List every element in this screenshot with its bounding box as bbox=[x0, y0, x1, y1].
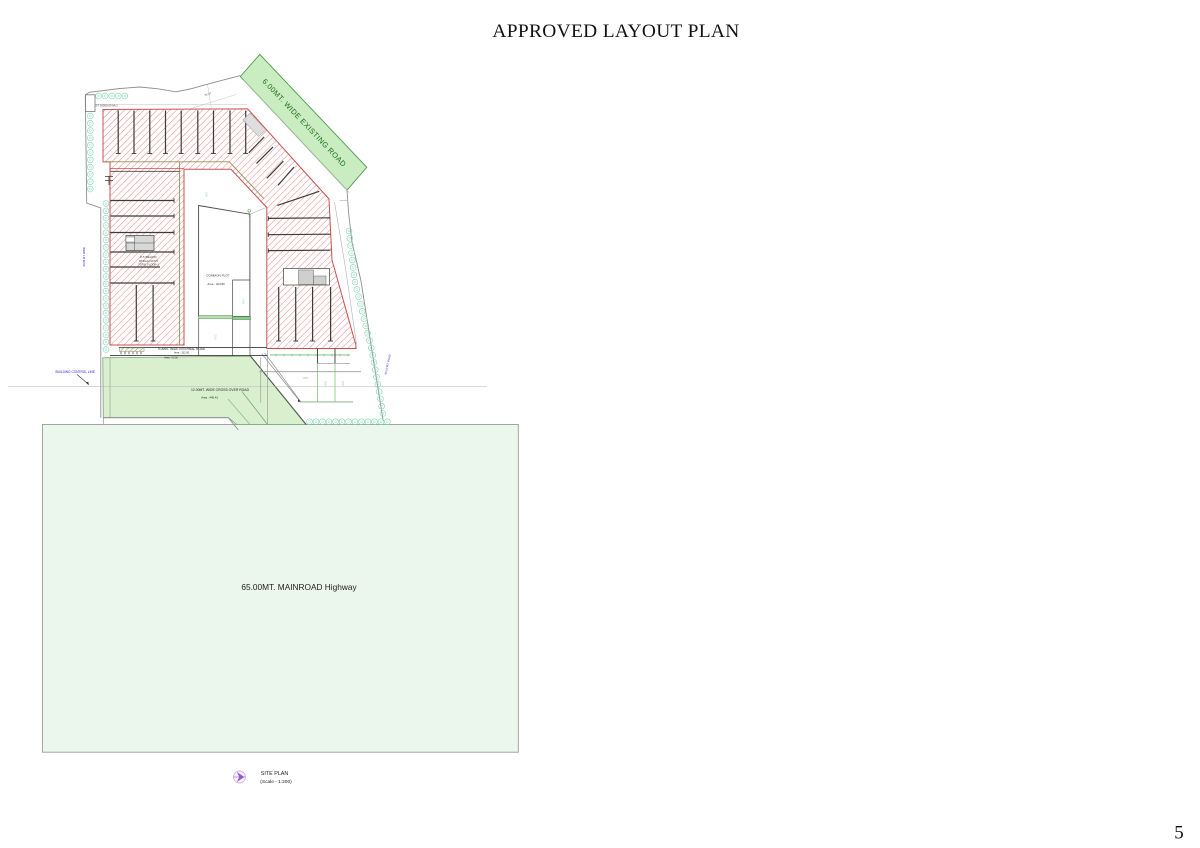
svg-text:Area : 445.41: Area : 445.41 bbox=[201, 395, 218, 399]
svg-text:VRD: VRD bbox=[243, 299, 246, 304]
svg-text:60.96 MT. WIDE: 60.96 MT. WIDE bbox=[82, 247, 86, 267]
svg-text:9.00MT. WIDE INTERNAL ROAD: 9.00MT. WIDE INTERNAL ROAD bbox=[158, 347, 206, 351]
svg-text:VRD: VRD bbox=[206, 192, 209, 197]
svg-text:VRD: VRD bbox=[249, 211, 251, 216]
svg-text:5: 5 bbox=[1174, 823, 1184, 844]
svg-text:SITE PLAN: SITE PLAN bbox=[261, 771, 289, 777]
svg-text:38.50x11.00 MT: 38.50x11.00 MT bbox=[139, 259, 159, 263]
svg-text:BUILDING CONTROL LINE: BUILDING CONTROL LINE bbox=[56, 370, 95, 374]
svg-text:12.00MT. WIDE CROSS OVER ROAD: 12.00MT. WIDE CROSS OVER ROAD bbox=[191, 388, 250, 392]
svg-text:VRD: VRD bbox=[342, 381, 345, 386]
svg-text:Area : 00.00: Area : 00.00 bbox=[164, 357, 178, 360]
svg-text:Area : 324.89: Area : 324.89 bbox=[207, 282, 225, 286]
svg-text:Area : 312.00: Area : 312.00 bbox=[174, 351, 190, 354]
svg-text:VRD: VRD bbox=[302, 376, 309, 380]
svg-text:APPROVED LAYOUT PLAN: APPROVED LAYOUT PLAN bbox=[492, 21, 739, 42]
svg-text:COMMON PLOT: COMMON PLOT bbox=[206, 274, 229, 278]
svg-text:(Scale - 1:200): (Scale - 1:200) bbox=[260, 779, 292, 785]
svg-text:65.00MT. MAINROAD Highway: 65.00MT. MAINROAD Highway bbox=[241, 582, 357, 592]
svg-text:P-5 (BELOW): P-5 (BELOW) bbox=[140, 255, 157, 259]
svg-text:TOTAL FLOOR-1: TOTAL FLOOR-1 bbox=[138, 263, 159, 267]
svg-text:VRD: VRD bbox=[215, 334, 218, 339]
svg-text:VRD: VRD bbox=[324, 381, 327, 386]
